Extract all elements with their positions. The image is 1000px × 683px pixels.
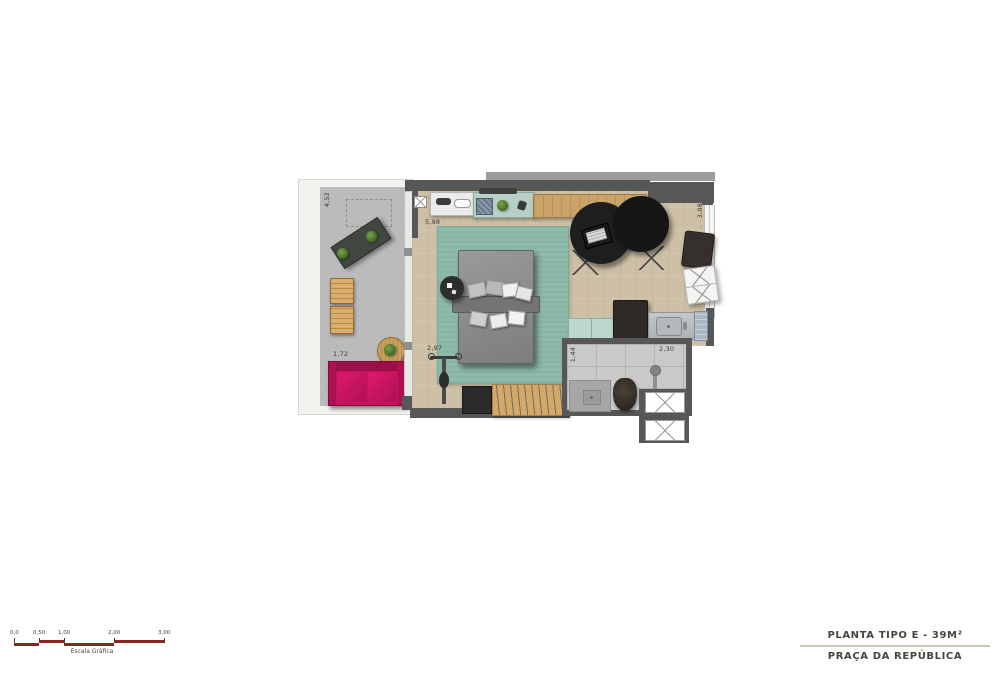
cooktop-burner [436,198,451,205]
cooktop-unit [430,192,474,216]
dining-table [613,196,669,252]
pillow [489,313,508,330]
bicycle-grip [455,353,462,360]
side-table [440,276,464,300]
pillow [469,311,488,328]
sofa [328,361,406,406]
sideboard-mint [568,318,614,340]
title-block: PLANTA TIPO E - 39M² PRAÇA DA REPÚBLICA [800,630,990,662]
scale-label: 3,00 [158,630,170,636]
wall-kitchen-nook [412,186,418,238]
plant [384,344,396,356]
plant [366,231,377,242]
floor-plan: 4,52 1,72 [0,0,1000,683]
shower-area [569,380,611,412]
title-divider [800,645,990,647]
bicycle-grip [428,353,435,360]
dim-living-depth: 3,08 [697,203,704,218]
kitchen-sink-dishes [476,198,493,215]
sofa-back [329,362,405,371]
scale-segment [114,640,164,643]
dim-closet-width: 2,97 [427,345,442,352]
cooktop-plate [454,199,471,208]
scale-bar: 0,0 0,50 1,00 2,00 3,00 Escala Gráfica [12,630,177,658]
lounge-chair-dark [681,230,715,269]
scale-label: 1,00 [58,630,70,636]
wardrobe-closet [492,384,570,416]
sofa-cushion [337,372,366,402]
sofa-arm [329,362,336,405]
scale-caption: Escala Gráfica [12,648,172,655]
scale-label: 0,50 [33,630,45,636]
sink-counter [648,312,696,340]
sink-drain [667,325,670,328]
pillow [507,310,525,326]
fridge [694,311,708,341]
plant [337,248,348,259]
scale-label: 0,0 [10,630,19,636]
toilet [613,378,637,411]
dim-living-width: 5,98 [425,219,440,226]
scale-segment [64,643,114,646]
bench [330,306,354,334]
plan-title: PLANTA TIPO E - 39M² [800,630,990,641]
side-table-tray [452,290,457,295]
dim-balcony-length: 4,52 [324,192,331,207]
duct-cell [645,392,685,413]
plan-subtitle: PRAÇA DA REPÚBLICA [800,651,990,662]
sofa-cushion [368,372,397,402]
shower-drain [590,396,593,399]
faucet [683,322,687,330]
scale-tick [164,638,165,643]
bicycle [428,350,462,410]
duct-cell [645,420,685,441]
tall-cabinet-dark [613,300,648,342]
duct-shaft [639,389,689,443]
shower-drain-box [583,390,601,405]
dim-bathroom-depth: 1,44 [570,347,577,362]
laptop-screen [586,228,607,244]
dim-bathroom-width: 2,30 [659,346,674,353]
column-marker [414,196,427,208]
shower-head [650,365,661,376]
bench [330,278,354,304]
scale-label: 2,00 [108,630,120,636]
scale-segment [14,643,39,646]
kitchen-hood [479,188,517,194]
side-table-tray [447,283,452,288]
scale-segment [39,640,64,643]
kitchen-sink [656,317,682,336]
plant [497,200,508,211]
wall-top [405,180,650,191]
page: 4,52 1,72 [0,0,1000,683]
chaise-white [683,265,720,305]
sideboard-divider [591,319,592,339]
bicycle-saddle [439,372,449,388]
wardrobe-cabinet [462,386,492,414]
dim-sofa-width: 1,72 [333,351,348,358]
